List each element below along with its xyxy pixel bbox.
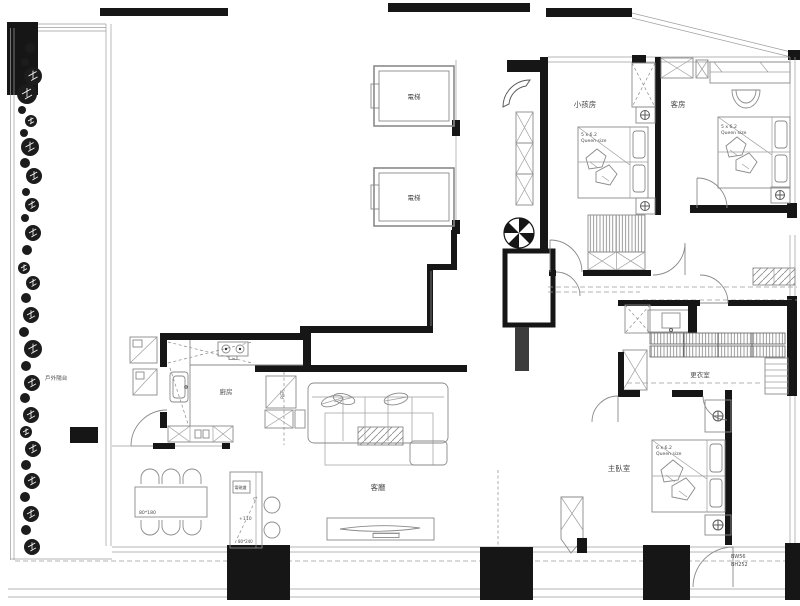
plant-icon <box>19 327 29 337</box>
dining-area: 80*180 電磁爐 +110 80*240 <box>112 443 280 548</box>
plant-icon <box>20 492 30 502</box>
floor-plan-drawing: 戶外陽台 電梯 電梯 <box>0 0 800 606</box>
kitchen-label: 廚房 <box>220 387 233 396</box>
plant-icon <box>22 245 32 255</box>
stove <box>218 342 248 360</box>
tv-console <box>327 518 434 540</box>
lobby-cabinet <box>516 112 533 205</box>
elevator-shafts: 電梯 電梯 <box>371 60 460 234</box>
balcony-label: 戶外陽台 <box>45 374 68 382</box>
kids-bed: 5 x 6.2 Queen size <box>578 127 648 198</box>
closet-racks <box>650 333 785 357</box>
guest-bed: 5 x 6.2 Queen size <box>718 117 790 188</box>
closet-vanity <box>648 310 692 332</box>
kids-room: 小孩房 5 x 6.2 Queen size <box>540 55 790 276</box>
floor-plan: 戶外陽台 電梯 電梯 <box>0 0 800 606</box>
elevator-top: 電梯 <box>371 66 454 126</box>
living-room-label: 客廳 <box>371 482 386 492</box>
plant-icon <box>21 293 31 303</box>
walk-in-closet: 更衣室 <box>618 275 795 396</box>
kids-bed-type: Queen size <box>581 138 607 144</box>
island-height-label: +110 <box>239 516 252 522</box>
plant-icon <box>21 214 29 222</box>
guest-room: 客房 5 x 6.2 Queen size <box>661 58 796 213</box>
plant-icon <box>21 525 31 535</box>
guest-bed-size: 5 x 6.2 <box>721 124 737 130</box>
elevator-top-label: 電梯 <box>408 92 422 101</box>
plant-icon <box>25 43 35 53</box>
plant-icon <box>18 106 26 114</box>
kids-nightstand-bottom <box>636 198 655 214</box>
guest-bed-type: Queen size <box>721 130 747 136</box>
induction-cooker-label: 電磁爐 <box>235 484 247 490</box>
plant-icon <box>22 188 30 196</box>
kitchen-base-cabinet <box>168 426 233 442</box>
master-bed-type: Queen size <box>656 451 682 457</box>
master-bed: 6 x 6.2 Queen size <box>652 440 725 512</box>
closet-label: 更衣室 <box>690 370 710 379</box>
dining-table-size: 80*180 <box>139 510 156 516</box>
guest-nightstand <box>771 187 790 203</box>
master-bed-size: 6 x 6.2 <box>656 445 672 451</box>
kids-nightstand-top <box>636 107 655 123</box>
coffee-table <box>358 427 403 445</box>
plant-icon <box>21 361 31 371</box>
living-room: 客廳 <box>284 372 448 540</box>
ceiling-fan-icon <box>504 218 534 248</box>
plant-icon <box>20 393 30 403</box>
plant-icon <box>21 58 29 66</box>
plant-icon <box>20 158 30 168</box>
refrigerator-label: REF <box>280 390 286 399</box>
plant-icon <box>20 129 28 137</box>
sofa <box>308 383 448 465</box>
balcony-plants <box>17 43 42 555</box>
plant-icon <box>21 460 31 470</box>
window-width-note: BW56 <box>731 554 746 560</box>
island-size-label: 80*240 <box>238 539 253 544</box>
kids-bed-size: 5 x 6.2 <box>581 132 597 138</box>
elevator-bottom-label: 電梯 <box>408 193 422 202</box>
bar-stools <box>264 497 280 538</box>
elevator-bottom: 電梯 <box>371 168 454 226</box>
closet-shelf <box>765 358 788 394</box>
dining-chairs <box>141 469 201 535</box>
island-counter: 電磁爐 +110 80*240 <box>230 472 262 548</box>
master-bedroom-label: 主臥室 <box>608 463 631 473</box>
kitchen-sink <box>170 372 188 402</box>
kids-room-label: 小孩房 <box>574 99 597 109</box>
refrigerator: REF <box>266 376 296 408</box>
washer-dryer <box>130 337 157 395</box>
dining-table: 80*180 <box>135 487 207 517</box>
window-height-note: BH252 <box>731 562 748 568</box>
guest-room-label: 客房 <box>671 99 686 109</box>
